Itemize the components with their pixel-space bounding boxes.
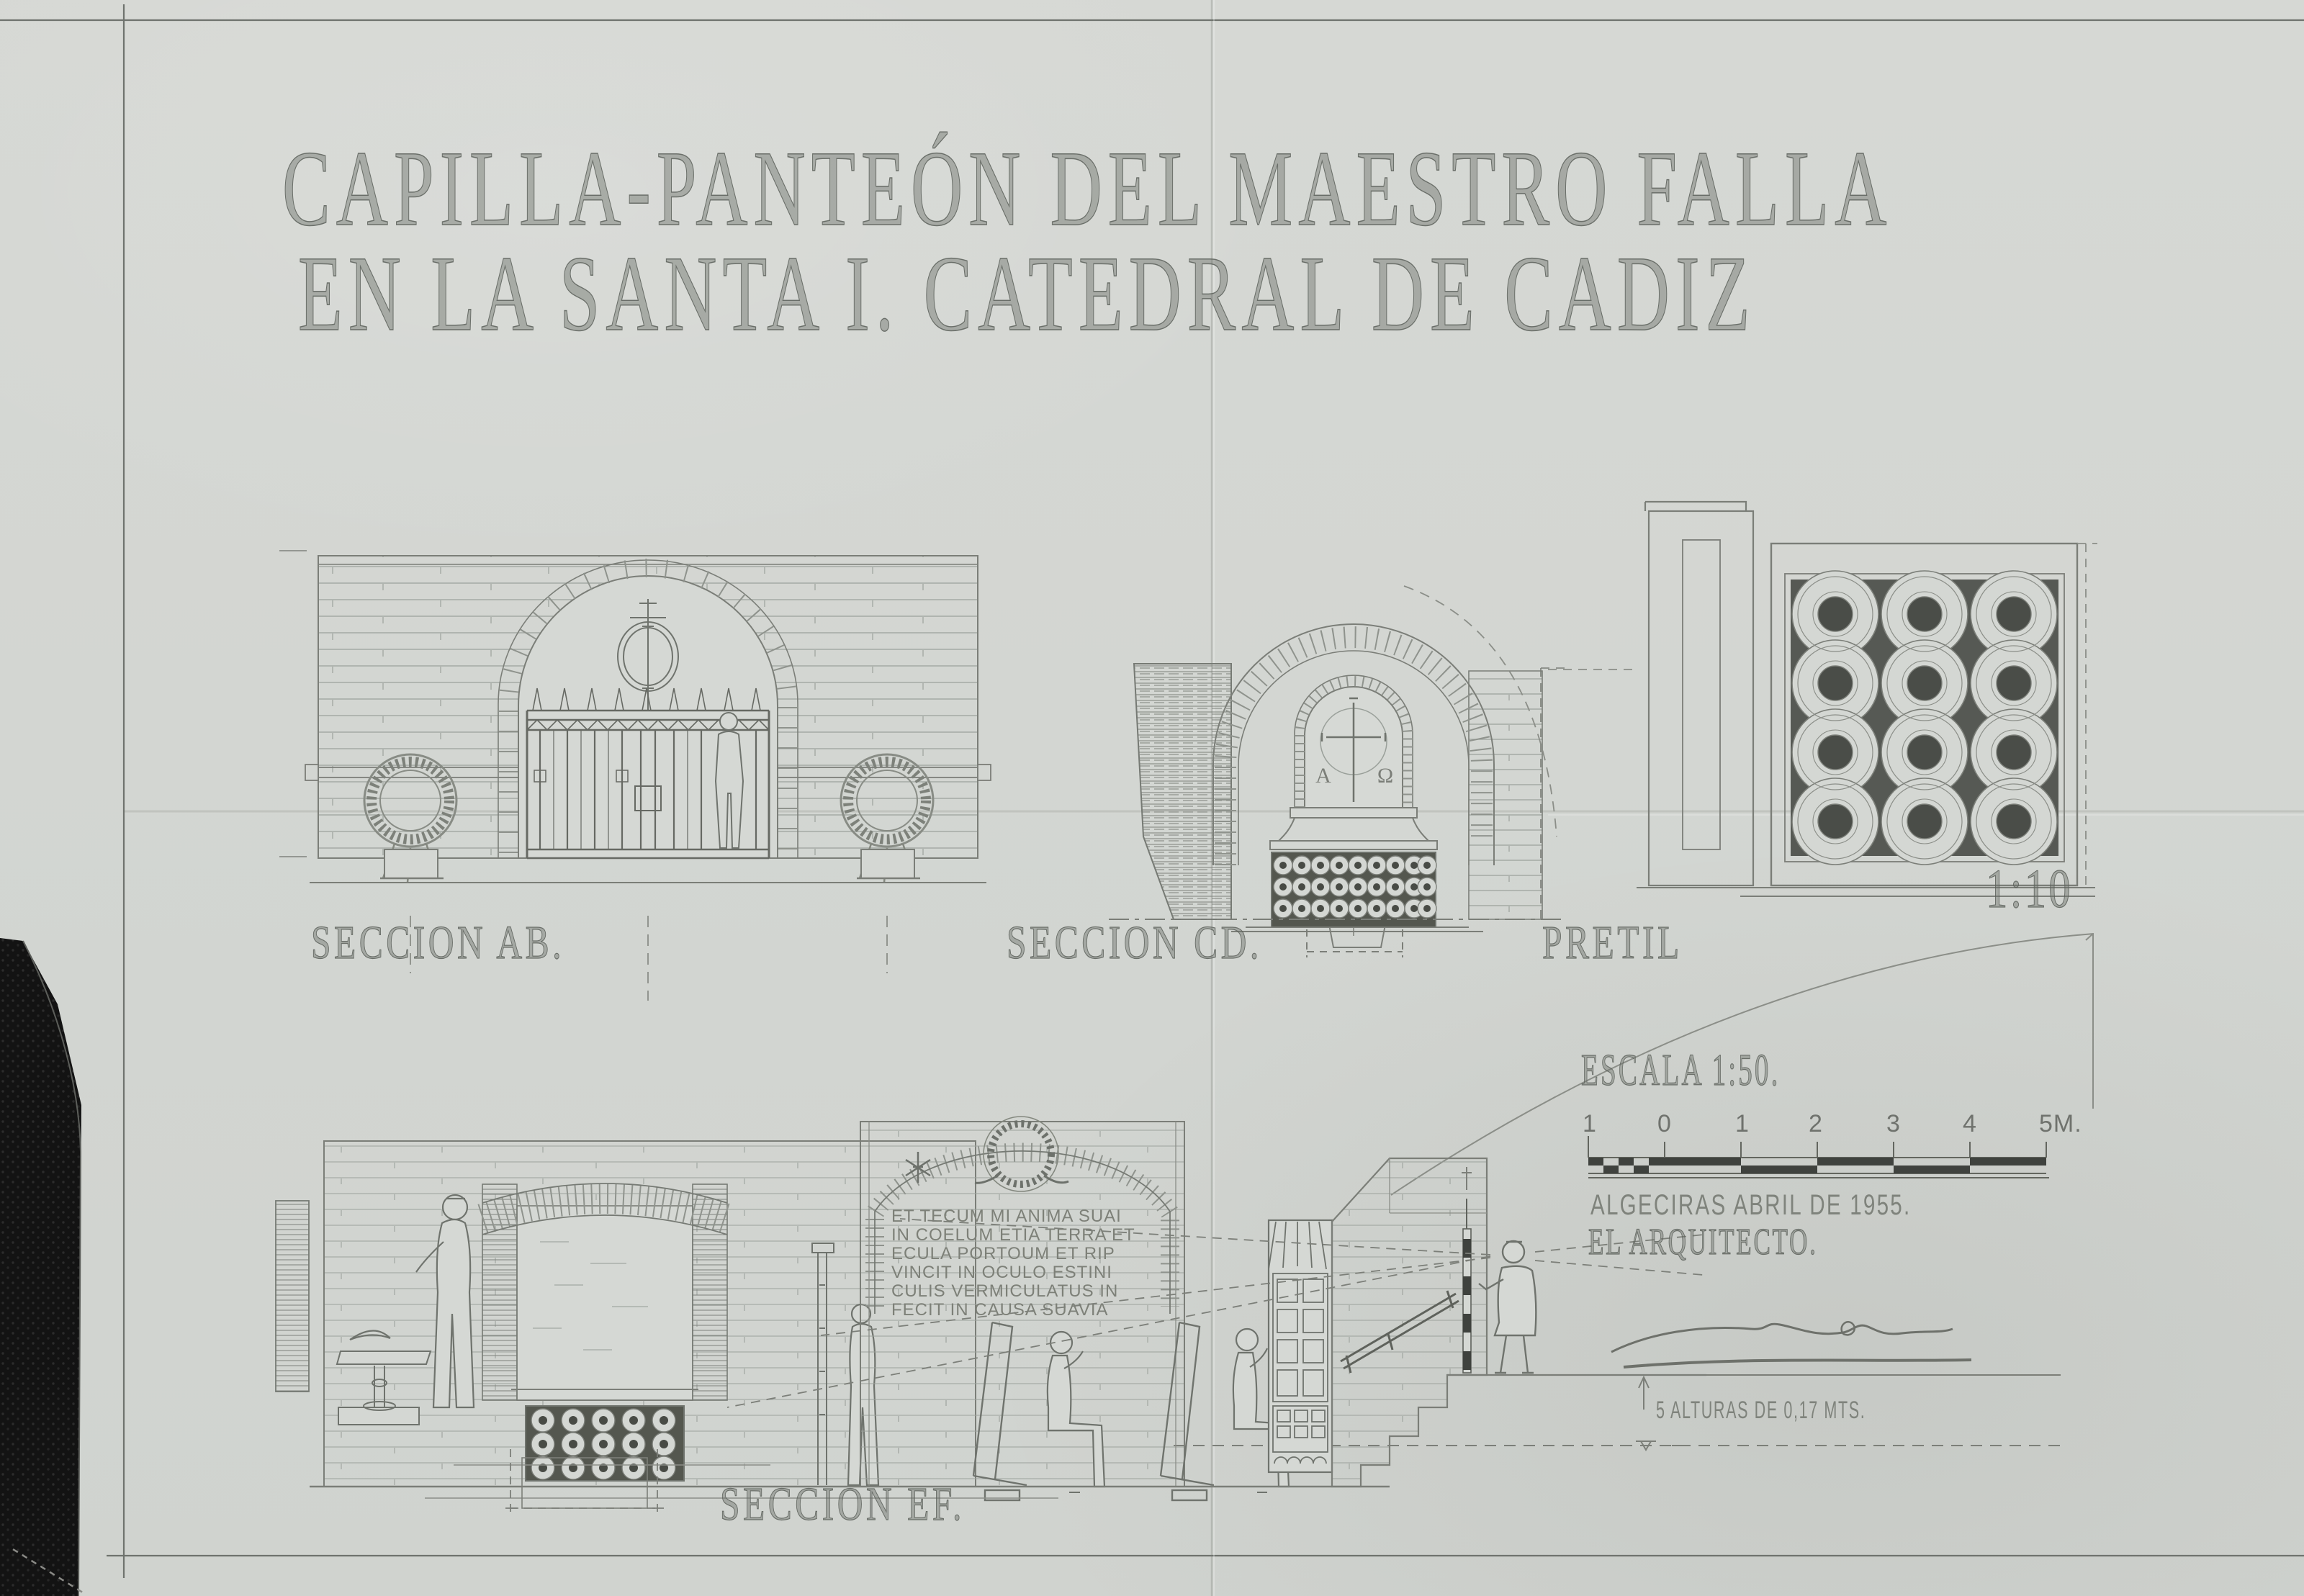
wall-end-hatch: [276, 1201, 309, 1392]
drawing-sheet: Α Ω: [0, 0, 2304, 1596]
label-place-date: ALGECIRAS ABRIL DE 1955.: [1590, 1189, 1911, 1222]
niche-cd: Α Ω: [1295, 675, 1413, 808]
wall-cd-right: [1469, 671, 1542, 919]
svg-text:ECULA PORTOUM ET RIP: ECULA PORTOUM ET RIP: [891, 1244, 1115, 1263]
guilloche-parapet-cd: [1272, 852, 1436, 927]
label-escala: ESCALA 1:50.: [1581, 1045, 1781, 1096]
scale-tick-1: 0: [1657, 1110, 1672, 1138]
backing-tear: [0, 938, 85, 1596]
svg-text:CULIS VERMICULATUS IN: CULIS VERMICULATUS IN: [891, 1281, 1118, 1301]
scale-tick-5: 4: [1963, 1110, 1977, 1138]
scale-tick-4: 3: [1886, 1110, 1901, 1138]
tomb-inscription: ET TECUM MI ANIMA SUAI IN COELUM ETIA TE…: [891, 1207, 1135, 1320]
seccion-cd-drawing: Α Ω: [1066, 527, 1570, 934]
svg-text:IN COELUM ETIA TERRA ET: IN COELUM ETIA TERRA ET: [891, 1225, 1135, 1245]
svg-text:FECIT IN CAUSA SUAVIA: FECIT IN CAUSA SUAVIA: [891, 1300, 1109, 1320]
pretil-pilaster: [1645, 502, 1753, 885]
coffered-door: [1269, 1220, 1332, 1472]
omega-letter: Ω: [1377, 764, 1393, 788]
pretil-guilloche: [1791, 571, 2058, 865]
label-seccion-cd: SECCION CD.: [1007, 916, 1262, 970]
construction-tick: [2086, 934, 2093, 1109]
inscription-wall: ET TECUM MI ANIMA SUAI IN COELUM ETIA TE…: [860, 1117, 1184, 1487]
scale-bar-graphic: [1581, 1136, 2085, 1194]
label-architect: EL ARQUITECTO.: [1588, 1221, 1818, 1263]
pretil-drawing: [1631, 493, 2099, 914]
brick-pier: [1134, 664, 1231, 919]
seccion-ef-drawing: ET TECUM MI ANIMA SUAI IN COELUM ETIA TE…: [266, 1098, 1706, 1544]
label-seccion-ab: SECCION AB.: [311, 916, 564, 970]
scale-tick-6: 5M.: [2039, 1110, 2082, 1138]
scale-tick-0: 1: [1583, 1110, 1597, 1138]
seccion-ab-drawing: [302, 533, 994, 914]
label-seccion-ef: SECCION EF.: [720, 1477, 965, 1532]
svg-text:ET TECUM MI ANIMA SUAI: ET TECUM MI ANIMA SUAI: [891, 1207, 1122, 1226]
pretil-dashed-cut: [2077, 544, 2097, 885]
label-pretil-scale: 1:10: [1986, 858, 2073, 921]
label-heights-note: 5 ALTURAS DE 0,17 MTS.: [1656, 1397, 1866, 1425]
label-pretil: PRETIL: [1542, 916, 1683, 970]
alpha-letter: Α: [1315, 764, 1331, 788]
scale-tick-2: 1: [1735, 1110, 1750, 1138]
svg-text:VINCIT IN OCULO ESTINI: VINCIT IN OCULO ESTINI: [891, 1263, 1112, 1282]
sheet-title-line2: EN LA SANTA I. CATEDRAL DE CADIZ: [298, 232, 1756, 356]
crypt-niche: [482, 1184, 727, 1400]
scale-tick-3: 2: [1809, 1110, 1823, 1138]
altar-sill: [1270, 808, 1437, 849]
